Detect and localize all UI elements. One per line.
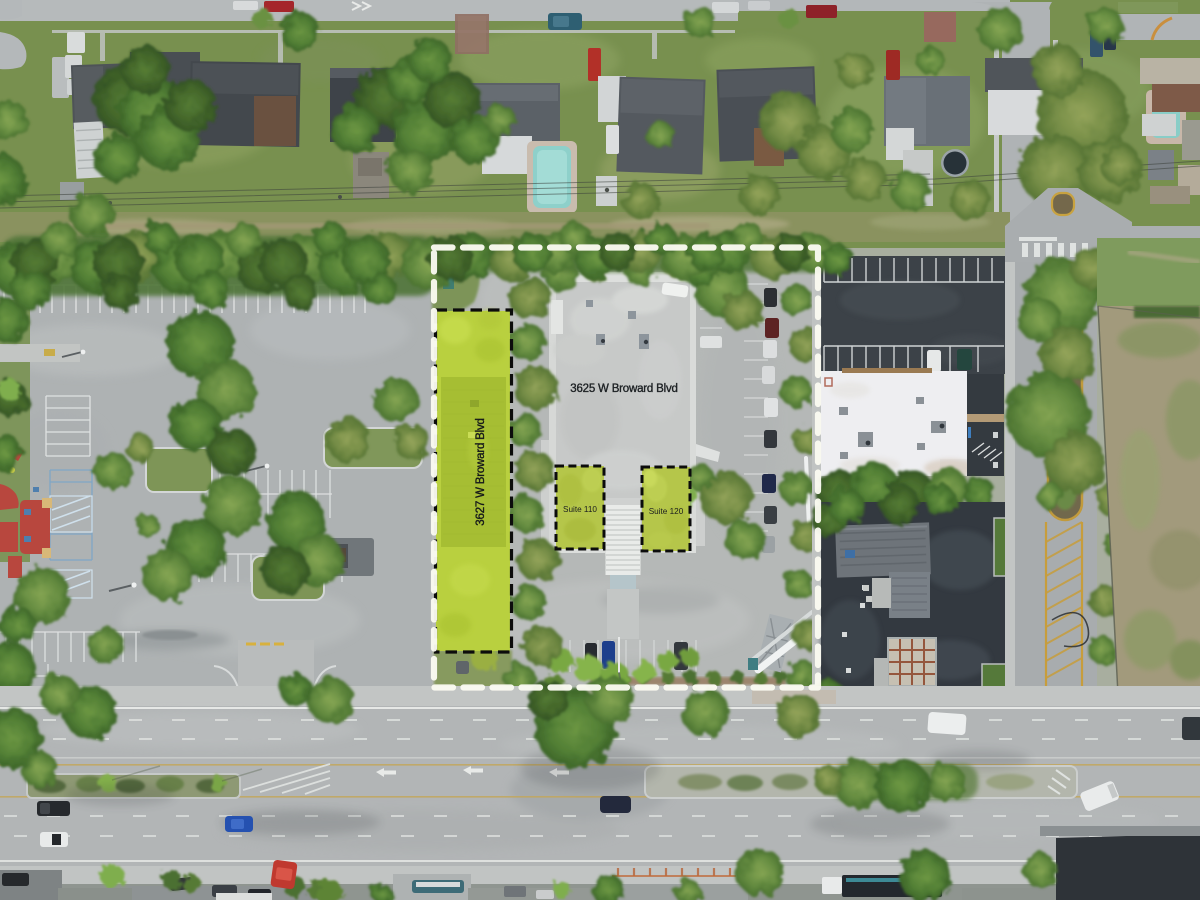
svg-text:Suite 110: Suite 110 (563, 505, 597, 514)
svg-text:3627 W Broward Blvd: 3627 W Broward Blvd (475, 418, 487, 525)
svg-text:3625 W Broward Blvd: 3625 W Broward Blvd (570, 383, 677, 395)
svg-text:Suite 120: Suite 120 (649, 507, 684, 516)
